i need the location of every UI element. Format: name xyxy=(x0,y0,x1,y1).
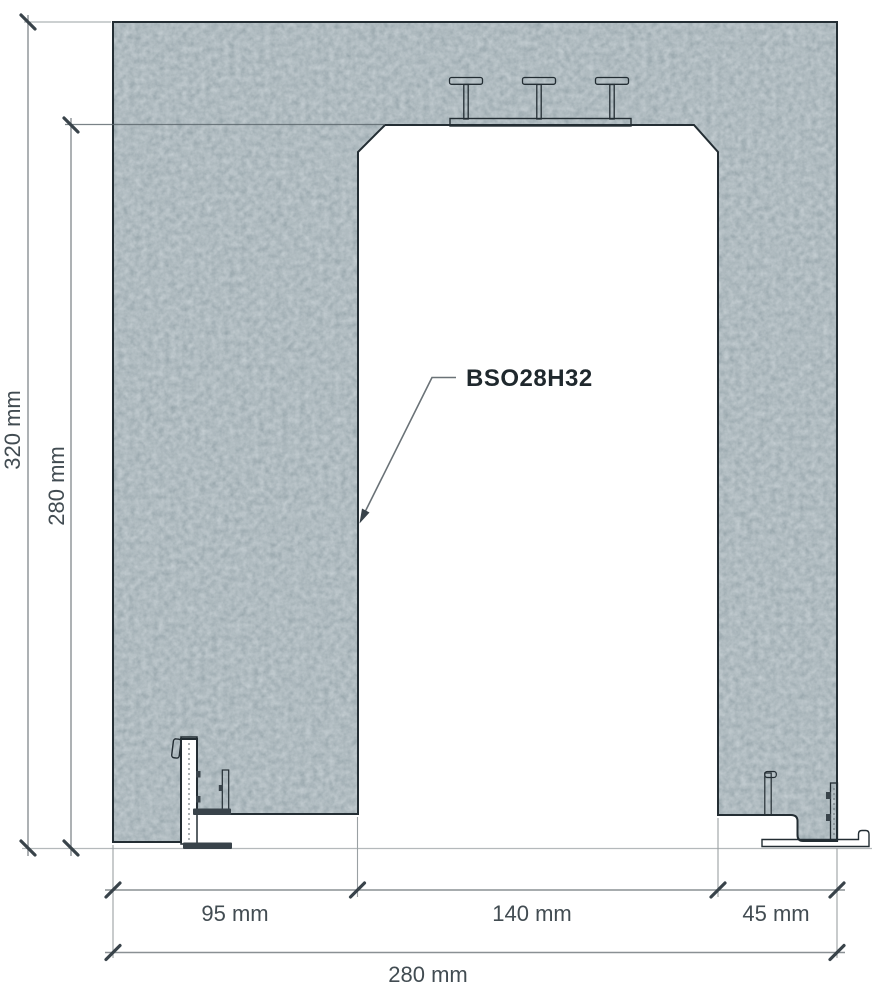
dim-total-height: 320 mm xyxy=(0,15,111,856)
concrete-texture xyxy=(105,14,845,854)
anchor-tab xyxy=(826,792,831,799)
concrete-speckle-fill xyxy=(105,14,845,854)
callout-label: BSO28H32 xyxy=(466,365,593,392)
base-foot xyxy=(183,843,232,850)
dim-label-opening: 140 mm xyxy=(492,901,571,926)
leader-line xyxy=(361,378,457,522)
section-drawing-canvas: BSO28H32 320 mm 280 mm 95 mm 140 mm 45 m… xyxy=(0,0,877,988)
dim-label-total-width: 280 mm xyxy=(388,962,467,987)
dim-label-inner-height: 280 mm xyxy=(44,446,69,525)
dim-inner-height: 280 mm xyxy=(44,118,78,856)
anchor-tab xyxy=(196,771,201,778)
dim-bottom-row1: 95 mm 140 mm 45 mm xyxy=(105,817,845,958)
technical-drawing-page: BSO28H32 320 mm 280 mm 95 mm 140 mm 45 m… xyxy=(0,0,877,988)
anchor-tab xyxy=(196,796,201,803)
anchor-tab xyxy=(219,785,223,791)
dim-bottom-row2: 280 mm xyxy=(105,946,845,988)
dim-label-right-wall: 45 mm xyxy=(742,901,809,926)
dim-label-left-wall: 95 mm xyxy=(201,901,268,926)
upper-flange xyxy=(193,809,231,816)
dim-label-total-height: 320 mm xyxy=(0,390,25,469)
concrete-section xyxy=(65,14,845,854)
anchor-tab xyxy=(826,814,831,821)
callout: BSO28H32 xyxy=(360,365,593,524)
leader-arrow-icon xyxy=(360,509,370,524)
